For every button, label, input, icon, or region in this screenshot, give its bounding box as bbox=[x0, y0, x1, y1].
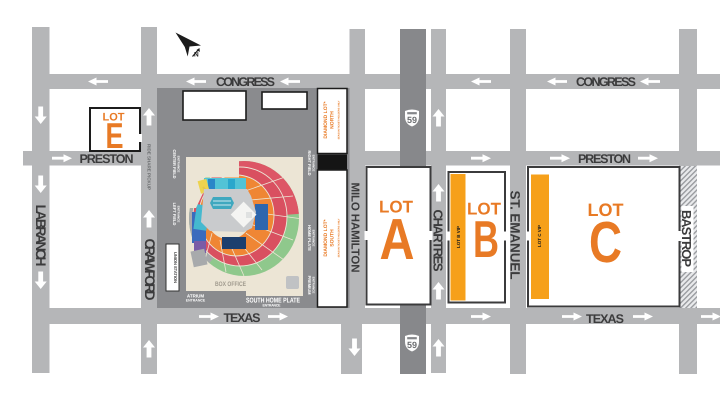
svg-text:TEXAS: TEXAS bbox=[586, 312, 624, 326]
svg-text:PREMIUM: PREMIUM bbox=[307, 276, 312, 296]
svg-text:SEASON TICKET HOLDERS ONLY: SEASON TICKET HOLDERS ONLY bbox=[338, 100, 341, 139]
svg-text:PRESTON: PRESTON bbox=[80, 152, 134, 166]
svg-text:BASTROP: BASTROP bbox=[679, 210, 694, 267]
svg-text:LA BRANCH: LA BRANCH bbox=[33, 205, 49, 267]
svg-text:RIGHT FIELD: RIGHT FIELD bbox=[307, 150, 312, 175]
svg-text:C: C bbox=[589, 210, 622, 275]
svg-text:LOT B VIP: LOT B VIP bbox=[456, 226, 461, 248]
svg-text:ENTRANCE: ENTRANCE bbox=[186, 298, 206, 302]
svg-text:MILO HAMILTON: MILO HAMILTON bbox=[349, 183, 361, 273]
svg-text:RIDE SHARE PICKUP: RIDE SHARE PICKUP bbox=[147, 144, 152, 190]
svg-text:HOME PLATE: HOME PLATE bbox=[307, 225, 312, 251]
svg-text:CENTER FIELD: CENTER FIELD bbox=[172, 149, 177, 178]
svg-text:DIAMOND LOT*: DIAMOND LOT* bbox=[323, 219, 329, 256]
svg-text:ENTRANCE: ENTRANCE bbox=[312, 277, 316, 294]
svg-text:CRAWFORD: CRAWFORD bbox=[142, 239, 158, 301]
svg-text:CONGRESS: CONGRESS bbox=[216, 75, 275, 89]
svg-text:CHARTRES: CHARTRES bbox=[431, 210, 446, 272]
svg-text:PRESTON: PRESTON bbox=[578, 152, 631, 166]
svg-text:A: A bbox=[380, 207, 415, 272]
svg-text:LOT C VIP: LOT C VIP bbox=[537, 225, 542, 247]
svg-text:ENTRANCE: ENTRANCE bbox=[177, 156, 181, 173]
svg-text:B: B bbox=[473, 211, 499, 269]
svg-text:NORTH: NORTH bbox=[330, 111, 336, 129]
svg-text:SEASON TICKET HOLDERS ONLY: SEASON TICKET HOLDERS ONLY bbox=[338, 218, 341, 257]
svg-text:DIAMOND LOT*: DIAMOND LOT* bbox=[323, 101, 329, 138]
svg-text:CONGRESS: CONGRESS bbox=[576, 75, 636, 89]
svg-text:ST. EMANUEL: ST. EMANUEL bbox=[508, 191, 523, 280]
svg-text:BOX OFFICE: BOX OFFICE bbox=[215, 281, 247, 288]
svg-text:ENTRANCE: ENTRANCE bbox=[312, 230, 316, 247]
svg-text:UNION STATION: UNION STATION bbox=[173, 252, 178, 283]
svg-text:SOUTH: SOUTH bbox=[330, 229, 336, 247]
svg-text:E: E bbox=[106, 115, 124, 156]
svg-text:ENTRANCE: ENTRANCE bbox=[177, 206, 181, 223]
svg-text:ENTRANCE: ENTRANCE bbox=[312, 155, 316, 172]
svg-text:LEFT FIELD: LEFT FIELD bbox=[172, 203, 177, 226]
svg-text:ENTRANCE: ENTRANCE bbox=[263, 303, 282, 307]
svg-text:TEXAS: TEXAS bbox=[224, 311, 261, 325]
